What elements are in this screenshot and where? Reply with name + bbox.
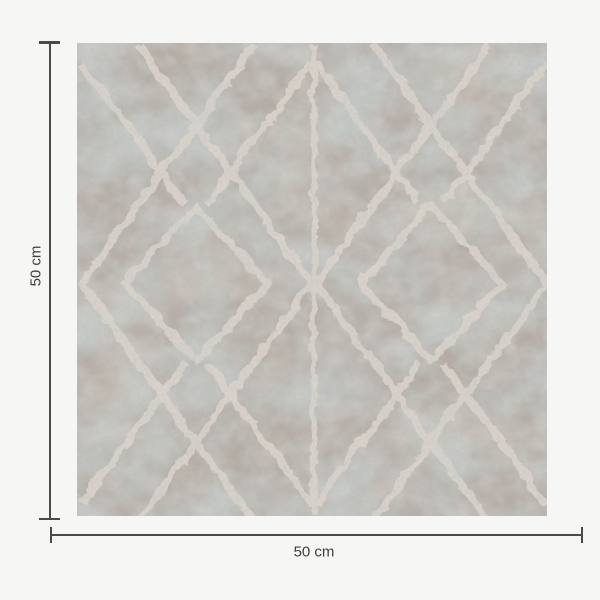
width-dimension-cap-left	[50, 527, 53, 543]
height-dimension-cap-bottom	[39, 518, 60, 521]
product-dimension-viewer: 50 cm 50 cm	[0, 0, 600, 600]
height-dimension-label: 50 cm	[29, 246, 44, 287]
height-dimension-line	[49, 42, 51, 518]
height-dimension-cap-top	[39, 41, 60, 44]
width-dimension-cap-right	[581, 527, 584, 543]
texture-grain	[77, 43, 547, 516]
trellis-pattern	[77, 43, 547, 516]
width-dimension-line	[50, 534, 582, 536]
width-dimension-label: 50 cm	[294, 545, 335, 560]
tile-swatch-image	[77, 43, 547, 516]
